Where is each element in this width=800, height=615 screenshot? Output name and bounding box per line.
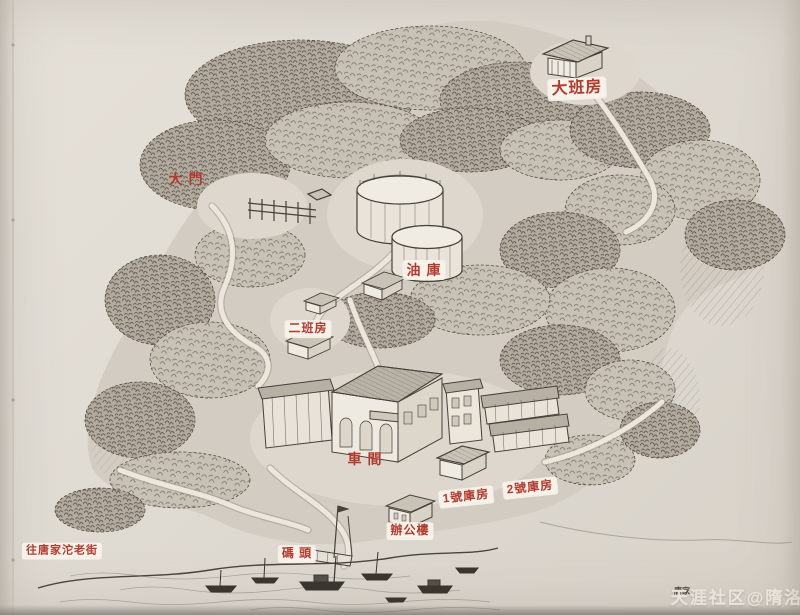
book-page-photo: 大班房大 門油 庫二班房車 間1號庫房2號庫房辦公樓碼 頭往唐家沱老街 唐家 天… <box>0 0 800 615</box>
map-label-che-jian: 車 間 <box>346 451 385 467</box>
map-label-you-ku: 油 庫 <box>405 262 444 278</box>
watermark: 天涯社区@隋洛 <box>671 584 800 609</box>
map-label-da-men: 大 門 <box>167 171 206 187</box>
map-label-bangong-lou: 辦公樓 <box>388 524 431 538</box>
mid-building <box>443 379 483 444</box>
page-binding <box>11 0 14 615</box>
map-label-daban-fang: 大班房 <box>549 78 605 99</box>
map-label-erban-fang: 二班房 <box>286 322 329 336</box>
long-shed <box>258 379 334 448</box>
map-label-ma-tou: 碼 頭 <box>280 547 314 561</box>
map-label-wang-tangjiatuo-laojie: 往唐家沱老街 <box>24 545 100 558</box>
